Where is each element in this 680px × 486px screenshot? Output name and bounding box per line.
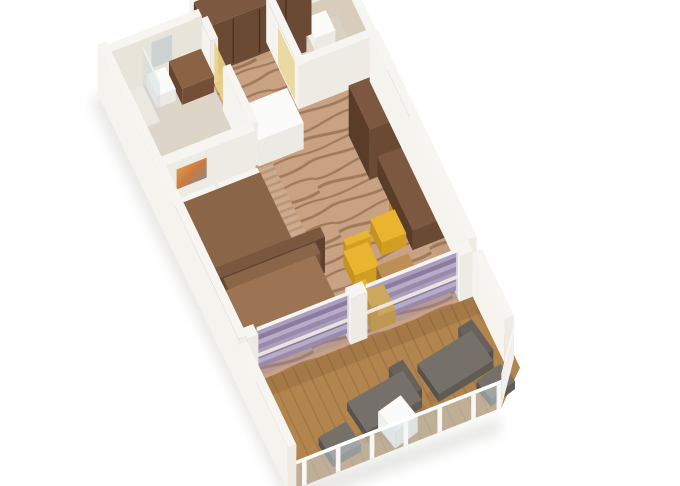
wardrobe-seam-1 [233,19,234,64]
railing-post-3-face [370,434,375,460]
floorplan-stage [0,0,680,486]
wall-left-balcony-side [288,445,297,486]
railing-post-5-face [437,407,442,433]
railing-post-2 [336,447,341,473]
railing-post-3 [370,434,375,460]
wardrobe-seam-1-face [233,19,234,64]
railing-post-7 [497,384,502,410]
glasswall-frame-right-side [460,251,473,302]
railing-post-7-face [497,384,502,410]
railing-post-5 [437,407,442,433]
railing-post-6 [471,394,476,420]
wardrobe-seam-2-face [259,9,261,54]
railing-post-2-face [336,447,341,473]
railing-post-1-face [302,460,307,486]
glasswall-frame-mid-side [351,292,368,345]
railing-post-4-face [404,421,409,447]
floorplan-svg [0,0,680,486]
wall-wc-south-side [295,58,299,109]
wardrobe-seam-2 [259,9,261,54]
railing-post-6-face [471,394,476,420]
railing-post-1 [302,460,307,486]
railing-post-4 [404,421,409,447]
